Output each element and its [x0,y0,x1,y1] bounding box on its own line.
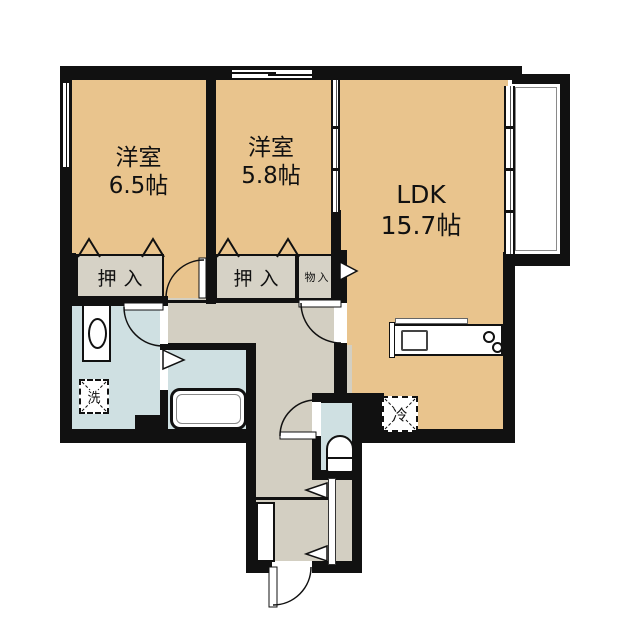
wall-ldk-right [503,252,515,443]
kitchen-hood-line [395,318,468,324]
doorway-toilet [312,402,321,436]
bathtub [170,388,247,430]
room-ldk [336,72,508,432]
room-name-label: 洋室 [206,134,336,162]
vanity-unit [82,304,111,362]
room-label-middle-bedroom: 洋室 5.8帖 [206,134,336,190]
toilet-fixture [326,435,354,473]
toilet-tank-line [328,457,352,459]
refrigerator-symbol: 冷 [382,396,418,432]
doorway-entrance [272,561,312,573]
stove-burner-icon [483,331,495,343]
window-sash-tick [506,210,513,213]
room-size-label: 6.5帖 [66,172,211,200]
room-label-ldk: LDK 15.7帖 [336,180,506,241]
doorway-washroom [160,306,168,344]
window-sash-line [268,74,312,76]
doorway-bathroom [160,350,168,390]
shoe-cabinet [256,502,275,562]
floor-plan-canvas: 押入 押入 物入 [0,0,640,640]
room-name-label: LDK [336,180,506,211]
hall-threshold-line [163,300,334,303]
balcony-railing [515,87,557,251]
window-top-middle-bedroom [232,68,312,80]
window-sash-tick [333,126,338,129]
door-leaf-entrance [269,567,277,607]
room-size-label: 15.7帖 [336,211,506,242]
bathtub-inner-line [176,394,241,424]
wall-corridor-left [246,429,256,573]
wall-ldk-bottom [352,429,515,443]
refrigerator-label: 冷 [392,404,407,425]
room-label-west-bedroom: 洋室 6.5帖 [66,144,211,200]
room-name-label: 洋室 [66,144,211,172]
closet-label: 物入 [303,269,331,285]
wall-balcony-bottom [512,254,570,266]
kitchen-end-panel [389,322,395,358]
stove-burner-icon [492,342,503,353]
closet-oshiire-west: 押入 [76,254,164,300]
wall-balcony-right [560,74,570,266]
closet-label: 押入 [226,264,285,291]
kitchen-sink [401,330,428,351]
wall-bathroom-top [163,343,252,350]
room-size-label: 5.8帖 [206,162,336,190]
closet-oshiire-middle: 押入 [215,254,297,300]
washer-symbol: 洗 [79,379,109,414]
entry-side-panel [328,478,336,565]
window-sash-tick [506,168,513,171]
wall-washroom-top [60,296,168,306]
doorway-ldk [334,303,347,343]
window-sash-tick [506,126,513,129]
wall-bathroom-right [246,343,256,443]
vanity-basin-icon [88,318,107,349]
balcony [512,84,560,254]
washer-label: 洗 [87,387,100,406]
closet-label: 押入 [90,264,149,291]
wall-washroom-jog [135,415,168,433]
entry-step-line [256,497,328,500]
